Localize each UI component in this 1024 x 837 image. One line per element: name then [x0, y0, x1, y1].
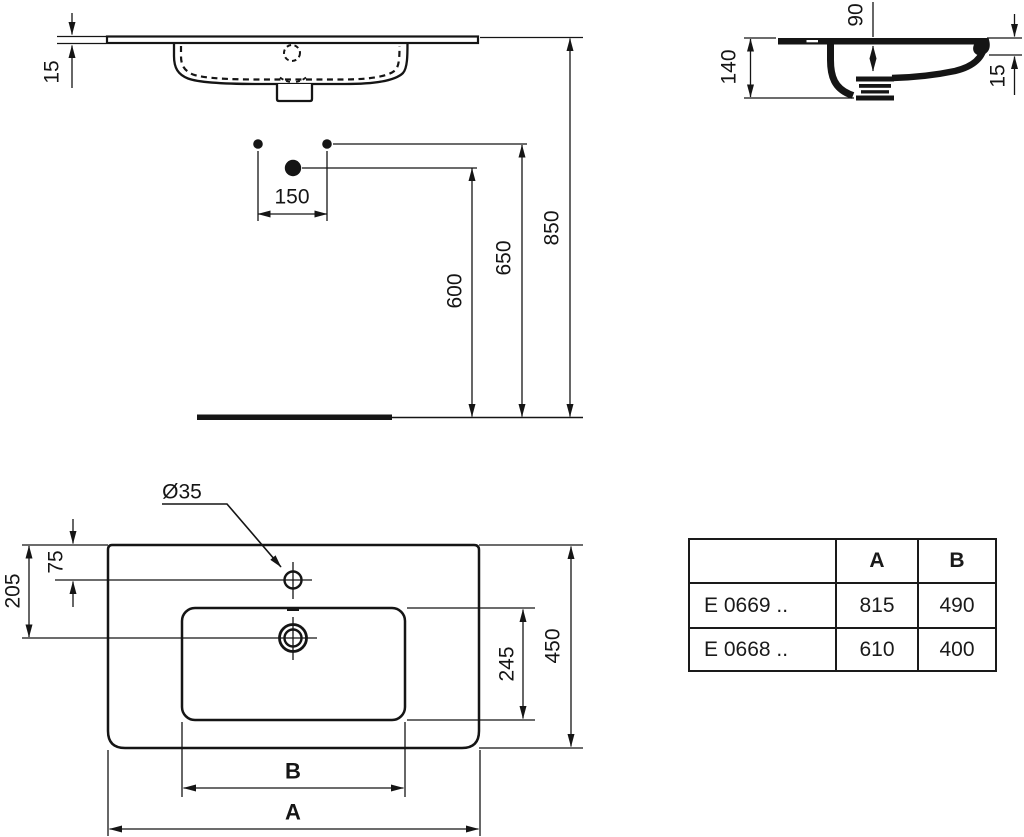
spec-table-a-e0669: 815 — [835, 582, 917, 627]
installation-view — [197, 38, 583, 421]
fixing-hole-left — [253, 139, 263, 149]
label-tap-hole-spacing: 150 — [274, 186, 309, 209]
label-overall-depth: 450 — [542, 628, 565, 663]
washbasin-dimension-drawing: 15 150 600 650 850 — [0, 0, 1024, 837]
floor-line — [197, 415, 392, 421]
front-edge-profile — [973, 38, 990, 55]
bowl-wall-right — [892, 44, 985, 78]
spec-table-header-a: A — [835, 540, 917, 582]
side-section-view — [744, 2, 1022, 101]
label-bowl-width-b: B — [285, 759, 301, 784]
label-front-rim-thickness: 15 — [41, 60, 64, 83]
waste-outlet — [277, 84, 312, 101]
label-tap-hole-diameter: Ø35 — [162, 481, 202, 504]
dimension-front-rim-15 — [57, 13, 106, 88]
label-waste-height: 600 — [444, 273, 467, 308]
label-overall-width-a: A — [285, 800, 301, 825]
drain-stack — [856, 77, 894, 101]
spec-table: A B E 0669 .. 815 490 E 0668 .. 610 400 — [688, 538, 997, 672]
spec-table-a-e0668: 610 — [835, 627, 917, 670]
label-basin-depth: 140 — [718, 49, 741, 84]
spec-table-b-e0669: 490 — [917, 582, 995, 627]
label-fixing-height: 650 — [493, 240, 516, 275]
label-tap-hole-offset: 75 — [45, 550, 68, 573]
waste-outlet-point — [285, 160, 301, 176]
label-front-edge-thickness: 15 — [987, 64, 1010, 87]
basin-rim-slab — [107, 37, 478, 44]
spec-table-header-b: B — [917, 540, 995, 582]
spec-table-model-e0669: E 0669 .. — [690, 582, 835, 627]
front-view — [107, 37, 478, 102]
spec-table-b-e0668: 400 — [917, 627, 995, 670]
label-bowl-depth: 90 — [845, 3, 868, 26]
label-rim-height: 850 — [541, 210, 564, 245]
label-bowl-front-back: 245 — [496, 646, 519, 681]
fixing-hole-right — [322, 139, 332, 149]
spec-table-model-e0668: E 0668 .. — [690, 627, 835, 670]
label-waste-offset: 205 — [2, 573, 25, 608]
technical-drawing-page: 15 150 600 650 850 — [0, 0, 1024, 837]
bowl-wall-left — [831, 44, 854, 96]
spec-table-corner-cell — [690, 540, 835, 582]
